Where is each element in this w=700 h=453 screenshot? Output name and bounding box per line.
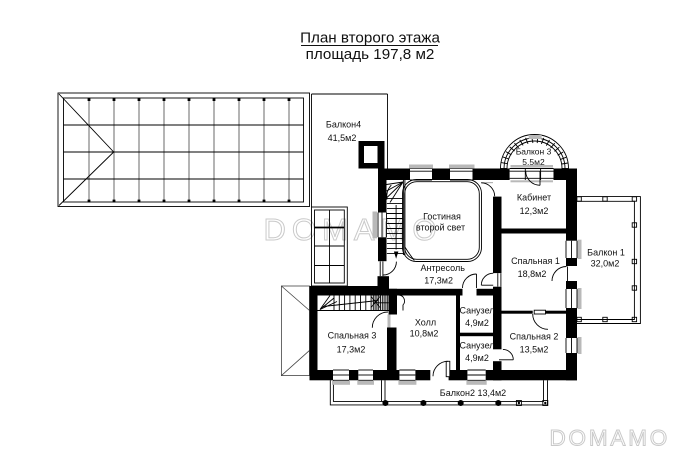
svg-text:12,3м2: 12,3м2 bbox=[520, 206, 549, 216]
svg-text:13,5м2: 13,5м2 bbox=[520, 345, 549, 355]
svg-text:Балкон4: Балкон4 bbox=[326, 120, 361, 130]
svg-text:второй свет: второй свет bbox=[416, 223, 465, 233]
svg-text:План второго этажа: План второго этажа bbox=[300, 30, 440, 47]
svg-text:DOMAMO: DOMAMO bbox=[550, 426, 671, 451]
svg-text:17,3м2: 17,3м2 bbox=[424, 276, 453, 286]
svg-text:Санузел: Санузел bbox=[459, 341, 494, 351]
svg-text:41,5м2: 41,5м2 bbox=[328, 133, 357, 143]
svg-text:Спальная 2: Спальная 2 bbox=[510, 332, 559, 342]
svg-text:Балкон 1: Балкон 1 bbox=[587, 248, 625, 258]
svg-text:17,3м2: 17,3м2 bbox=[337, 345, 366, 355]
svg-text:Гостиная: Гостиная bbox=[423, 212, 461, 222]
svg-text:10,8м2: 10,8м2 bbox=[410, 328, 439, 338]
svg-text:32,0м2: 32,0м2 bbox=[591, 259, 620, 269]
svg-text:Балкон2 13,4м2: Балкон2 13,4м2 bbox=[440, 388, 506, 398]
svg-text:площадь 197,8 м2: площадь 197,8 м2 bbox=[306, 46, 435, 63]
svg-text:Санузел: Санузел bbox=[459, 306, 494, 316]
svg-text:4,9м2: 4,9м2 bbox=[465, 318, 489, 328]
svg-text:Холл: Холл bbox=[415, 317, 436, 327]
svg-text:Спальная 1: Спальная 1 bbox=[511, 256, 560, 266]
svg-text:18,8м2: 18,8м2 bbox=[518, 269, 547, 279]
svg-text:Балкон 3: Балкон 3 bbox=[516, 147, 552, 157]
svg-text:Антресоль: Антресоль bbox=[420, 263, 465, 273]
svg-text:Кабинет: Кабинет bbox=[517, 193, 551, 203]
svg-text:4,9м2: 4,9м2 bbox=[465, 353, 489, 363]
svg-text:Спальная 3: Спальная 3 bbox=[328, 331, 377, 341]
